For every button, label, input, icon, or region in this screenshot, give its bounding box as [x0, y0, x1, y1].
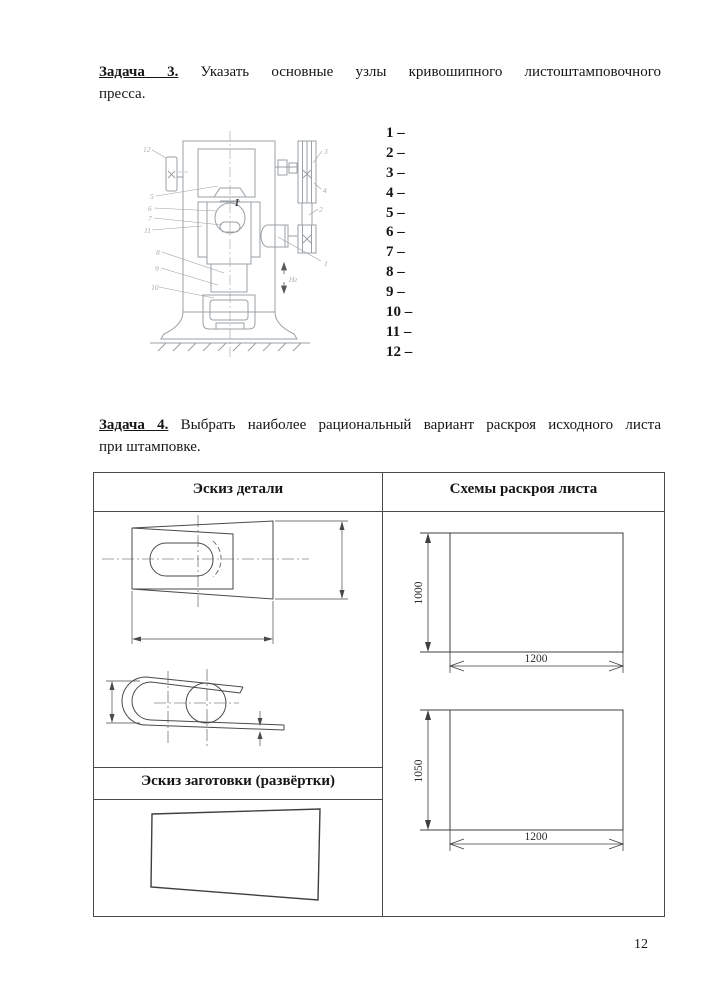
part-sketch-drawing	[94, 511, 381, 765]
answer-line: 7 –	[386, 243, 412, 263]
blank-sketch-drawing	[94, 799, 381, 913]
press-label: 1	[324, 259, 328, 268]
stroke-label: Нг	[288, 275, 297, 284]
section-label: I	[234, 198, 240, 209]
answer-line: 9 –	[386, 283, 412, 303]
task3-answer-list: 1 – 2 – 3 – 4 – 5 – 6 – 7 – 8 – 9 – 10 –…	[386, 124, 412, 363]
dim-sheet1-height: 1000	[413, 581, 425, 604]
press-label: 10	[151, 283, 159, 292]
table-subheader: Эскиз заготовки (развёртки)	[94, 773, 382, 790]
task3-label: Задача 3.	[99, 64, 178, 80]
task3-paragraph: Задача 3. Указать основные узлы кривошип…	[99, 61, 661, 105]
press-label: 3	[323, 147, 328, 156]
press-label: 12	[143, 145, 151, 154]
answer-line: 8 –	[386, 263, 412, 283]
dim-sheet1-width: 1200	[525, 653, 548, 665]
answer-line: 6 –	[386, 223, 412, 243]
press-label: 2	[319, 205, 323, 214]
task4-paragraph: Задача 4. Выбрать наиболее рациональный …	[99, 414, 661, 458]
answer-line: 12 –	[386, 343, 412, 363]
answer-line: 5 –	[386, 204, 412, 224]
press-label: 9	[155, 264, 159, 273]
dim-sheet2-width: 1200	[525, 831, 548, 843]
stroke-arrows	[282, 263, 287, 293]
press-label: 7	[148, 214, 152, 223]
table-header-left: Эскиз детали	[94, 481, 382, 498]
task3-line1: Задача 3. Указать основные узлы кривошип…	[99, 61, 661, 83]
task3-line2: пресса.	[99, 83, 661, 105]
press-figure-drawing: 12 5 6 7 11 8 9 10 3 4 2 1 I Нг	[128, 127, 383, 362]
table-header-right: Схемы раскроя листа	[383, 481, 664, 498]
press-part-numbers: 12 5 6 7 11 8 9 10 3 4 2 1 I Нг	[143, 145, 328, 292]
task3-text1: Указать основные узлы кривошипного листо…	[201, 64, 661, 80]
task4-label: Задача 4.	[99, 417, 168, 433]
answer-line: 2 –	[386, 144, 412, 164]
answer-line: 11 –	[386, 323, 412, 343]
table-subheader-rule-top	[94, 767, 382, 768]
task4-text1: Выбрать наиболее рациональный вариант ра…	[181, 417, 661, 433]
dim-sheet2-height: 1050	[413, 759, 425, 782]
press-outline	[150, 131, 322, 357]
answer-line: 4 –	[386, 184, 412, 204]
answer-line: 1 –	[386, 124, 412, 144]
document-page: Задача 3. Указать основные узлы кривошип…	[0, 0, 708, 1000]
sheet-layout-diagrams: 1000 1200 1050 1200	[382, 511, 664, 914]
press-label: 8	[156, 248, 160, 257]
press-label: 4	[323, 186, 327, 195]
press-label: 6	[148, 204, 152, 213]
answer-line: 10 –	[386, 303, 412, 323]
task4-line1: Задача 4. Выбрать наиболее рациональный …	[99, 414, 661, 436]
press-label: 5	[150, 192, 154, 201]
task4-line2: при штамповке.	[99, 436, 661, 458]
page-number: 12	[634, 937, 648, 953]
press-label: 11	[144, 226, 151, 235]
answer-line: 3 –	[386, 164, 412, 184]
